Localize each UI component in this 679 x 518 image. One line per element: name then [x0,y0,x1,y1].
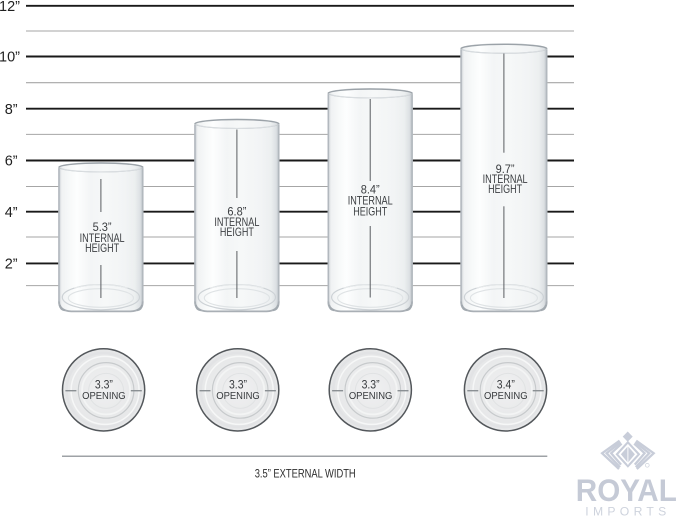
svg-text:HEIGHT: HEIGHT [85,242,119,255]
svg-text:8”: 8” [5,102,18,118]
svg-text:6”: 6” [5,154,18,170]
svg-text:OPENING: OPENING [349,391,393,402]
svg-text:3.4”: 3.4” [497,378,515,392]
svg-text:12”: 12” [0,0,20,15]
svg-text:4”: 4” [5,205,18,221]
svg-text:HEIGHT: HEIGHT [220,226,254,239]
svg-text:3.5” EXTERNAL WIDTH: 3.5” EXTERNAL WIDTH [255,466,356,480]
svg-text:OPENING: OPENING [82,391,126,402]
svg-text:HEIGHT: HEIGHT [353,206,387,219]
svg-text:OPENING: OPENING [484,391,528,402]
svg-text:3.3”: 3.3” [229,378,247,392]
svg-text:HEIGHT: HEIGHT [488,183,522,196]
svg-text:ROYAL: ROYAL [576,473,677,508]
svg-text:2”: 2” [5,257,18,273]
svg-text:3.3”: 3.3” [95,378,113,392]
svg-text:OPENING: OPENING [216,391,260,402]
svg-text:3.3”: 3.3” [362,378,380,392]
svg-text:10”: 10” [0,50,20,66]
